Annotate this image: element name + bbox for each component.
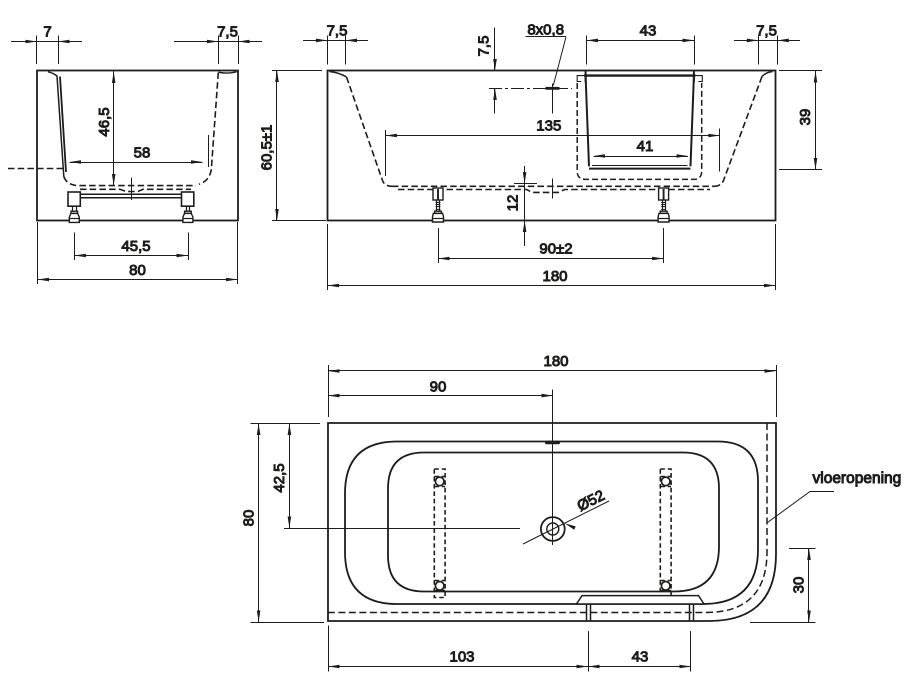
svg-text:Ø52: Ø52 (575, 487, 608, 515)
svg-text:7: 7 (43, 24, 51, 41)
svg-text:39: 39 (797, 109, 814, 126)
svg-text:90: 90 (430, 379, 447, 396)
svg-text:45,5: 45,5 (121, 238, 150, 255)
svg-text:90±2: 90±2 (539, 241, 572, 258)
svg-text:8x0,8: 8x0,8 (527, 22, 564, 39)
svg-text:7,5: 7,5 (327, 22, 348, 39)
svg-text:12: 12 (505, 195, 522, 212)
svg-text:7,5: 7,5 (476, 36, 493, 57)
svg-text:80: 80 (241, 510, 258, 527)
svg-text:46,5: 46,5 (96, 107, 113, 136)
svg-text:180: 180 (542, 268, 567, 285)
svg-text:7,5: 7,5 (756, 22, 777, 39)
svg-text:43: 43 (632, 649, 649, 666)
svg-text:42,5: 42,5 (271, 463, 288, 492)
svg-text:103: 103 (449, 649, 474, 666)
svg-text:7,5: 7,5 (217, 24, 238, 41)
svg-text:135: 135 (536, 118, 561, 135)
svg-text:41: 41 (637, 138, 654, 155)
svg-text:58: 58 (134, 145, 151, 162)
svg-text:30: 30 (791, 577, 808, 594)
svg-text:43: 43 (640, 22, 657, 39)
svg-text:180: 180 (543, 353, 568, 370)
svg-text:60,5±1: 60,5±1 (259, 125, 276, 171)
svg-text:80: 80 (129, 262, 146, 279)
svg-text:vloeropening: vloeropening (813, 470, 902, 487)
